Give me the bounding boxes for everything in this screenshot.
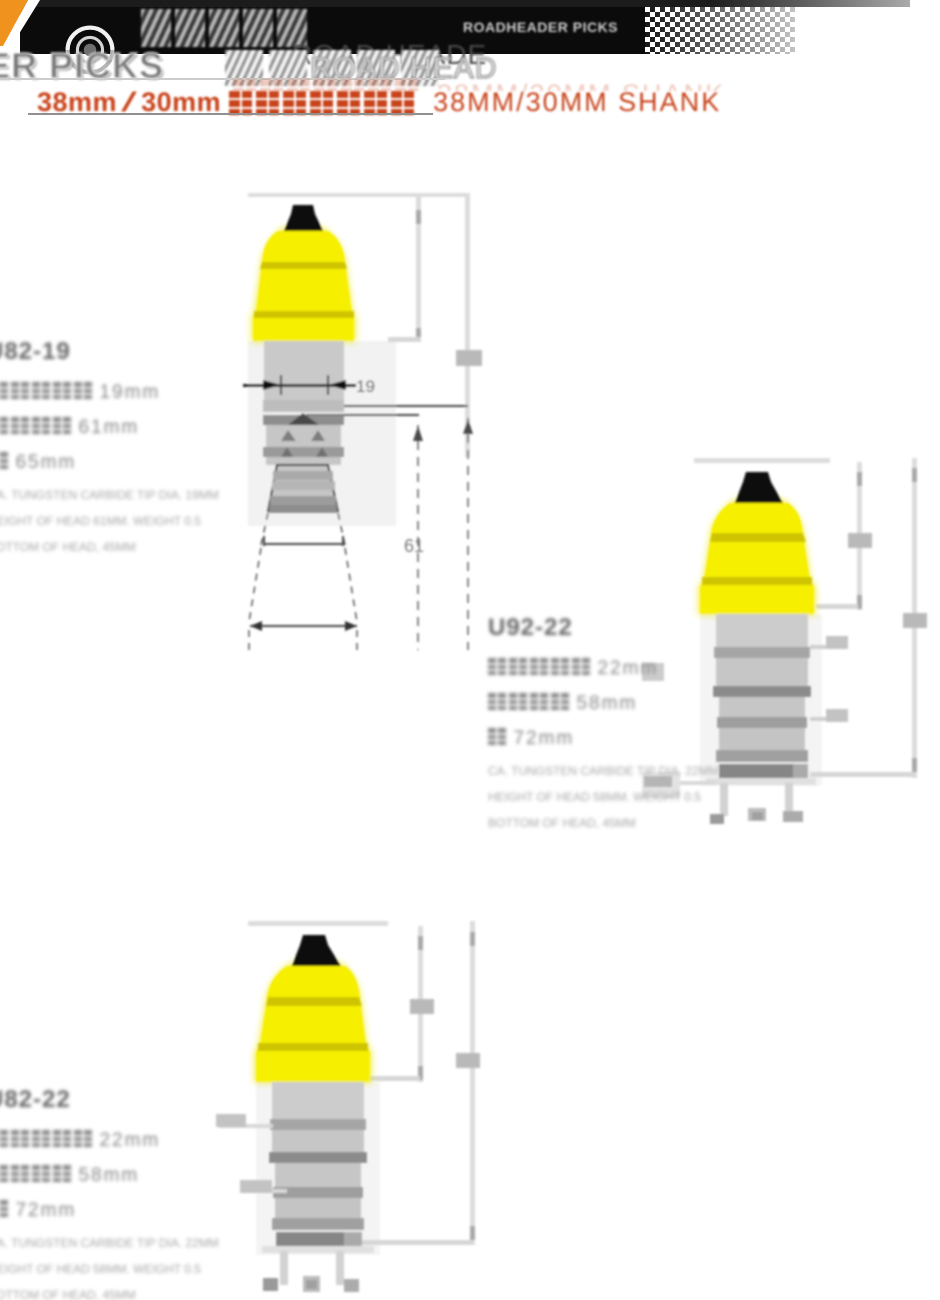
svg-text:19: 19	[356, 377, 375, 396]
svg-text:61: 61	[404, 536, 424, 556]
